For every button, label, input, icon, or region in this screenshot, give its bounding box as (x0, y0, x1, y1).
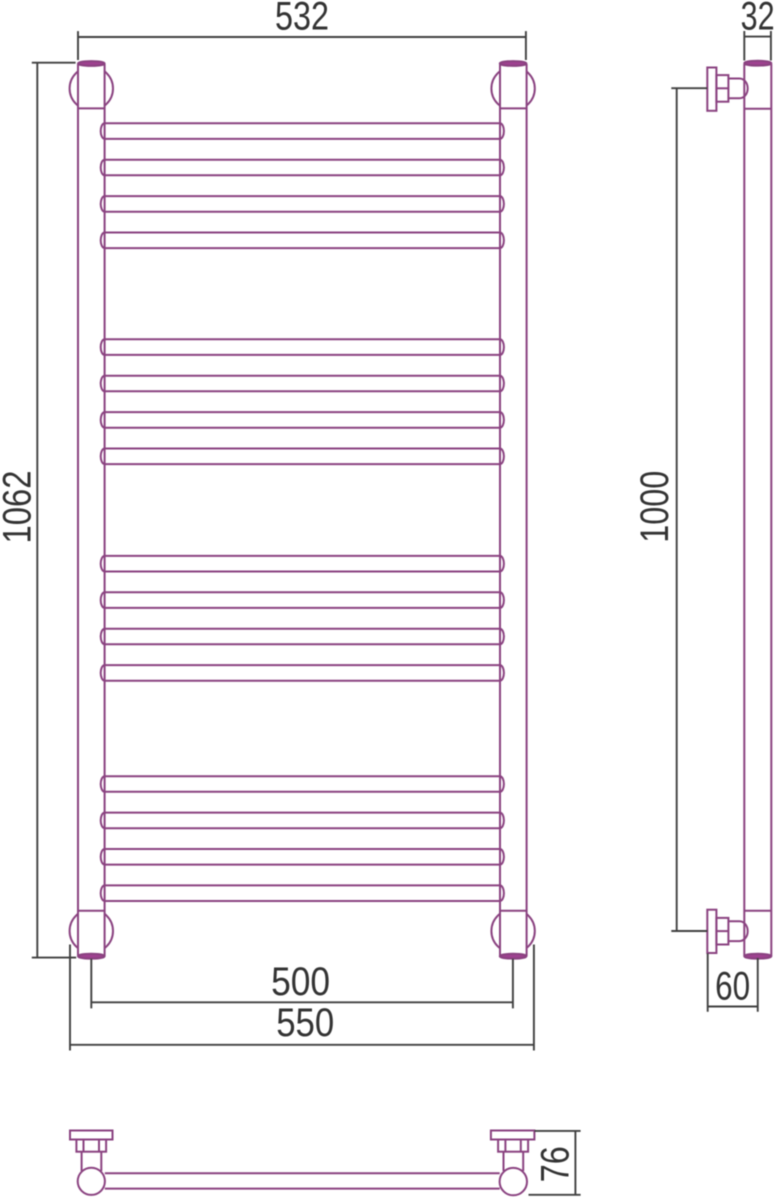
svg-text:532: 532 (275, 0, 329, 39)
svg-text:32: 32 (741, 0, 775, 38)
svg-text:500: 500 (271, 960, 330, 1004)
svg-text:1000: 1000 (633, 471, 677, 543)
svg-text:76: 76 (534, 1146, 578, 1182)
svg-text:60: 60 (715, 965, 750, 1009)
svg-text:550: 550 (276, 1001, 334, 1045)
svg-text:1062: 1062 (0, 471, 40, 544)
